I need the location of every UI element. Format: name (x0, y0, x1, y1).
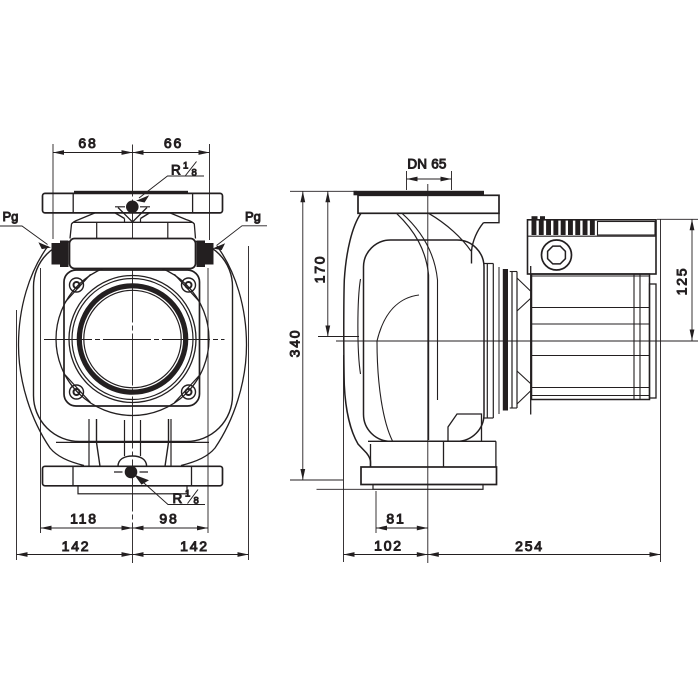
svg-text:Pg: Pg (245, 209, 261, 224)
svg-text:8: 8 (192, 168, 197, 179)
svg-text:98: 98 (159, 511, 178, 527)
svg-text:1: 1 (185, 489, 190, 500)
svg-text:125: 125 (674, 267, 690, 296)
svg-text:R: R (171, 163, 181, 178)
svg-text:118: 118 (70, 511, 98, 527)
svg-text:142: 142 (62, 538, 91, 554)
svg-text:340: 340 (287, 329, 303, 358)
svg-text:81: 81 (386, 511, 405, 527)
svg-text:R: R (173, 491, 183, 506)
svg-text:170: 170 (312, 255, 328, 284)
svg-text:68: 68 (78, 135, 97, 151)
svg-text:142: 142 (180, 538, 209, 554)
svg-text:DN 65: DN 65 (407, 157, 446, 172)
svg-text:254: 254 (515, 538, 544, 554)
svg-text:66: 66 (164, 135, 183, 151)
svg-text:Pg: Pg (3, 209, 19, 224)
svg-text:102: 102 (374, 538, 403, 554)
svg-text:8: 8 (194, 496, 199, 507)
svg-text:1: 1 (183, 161, 188, 172)
